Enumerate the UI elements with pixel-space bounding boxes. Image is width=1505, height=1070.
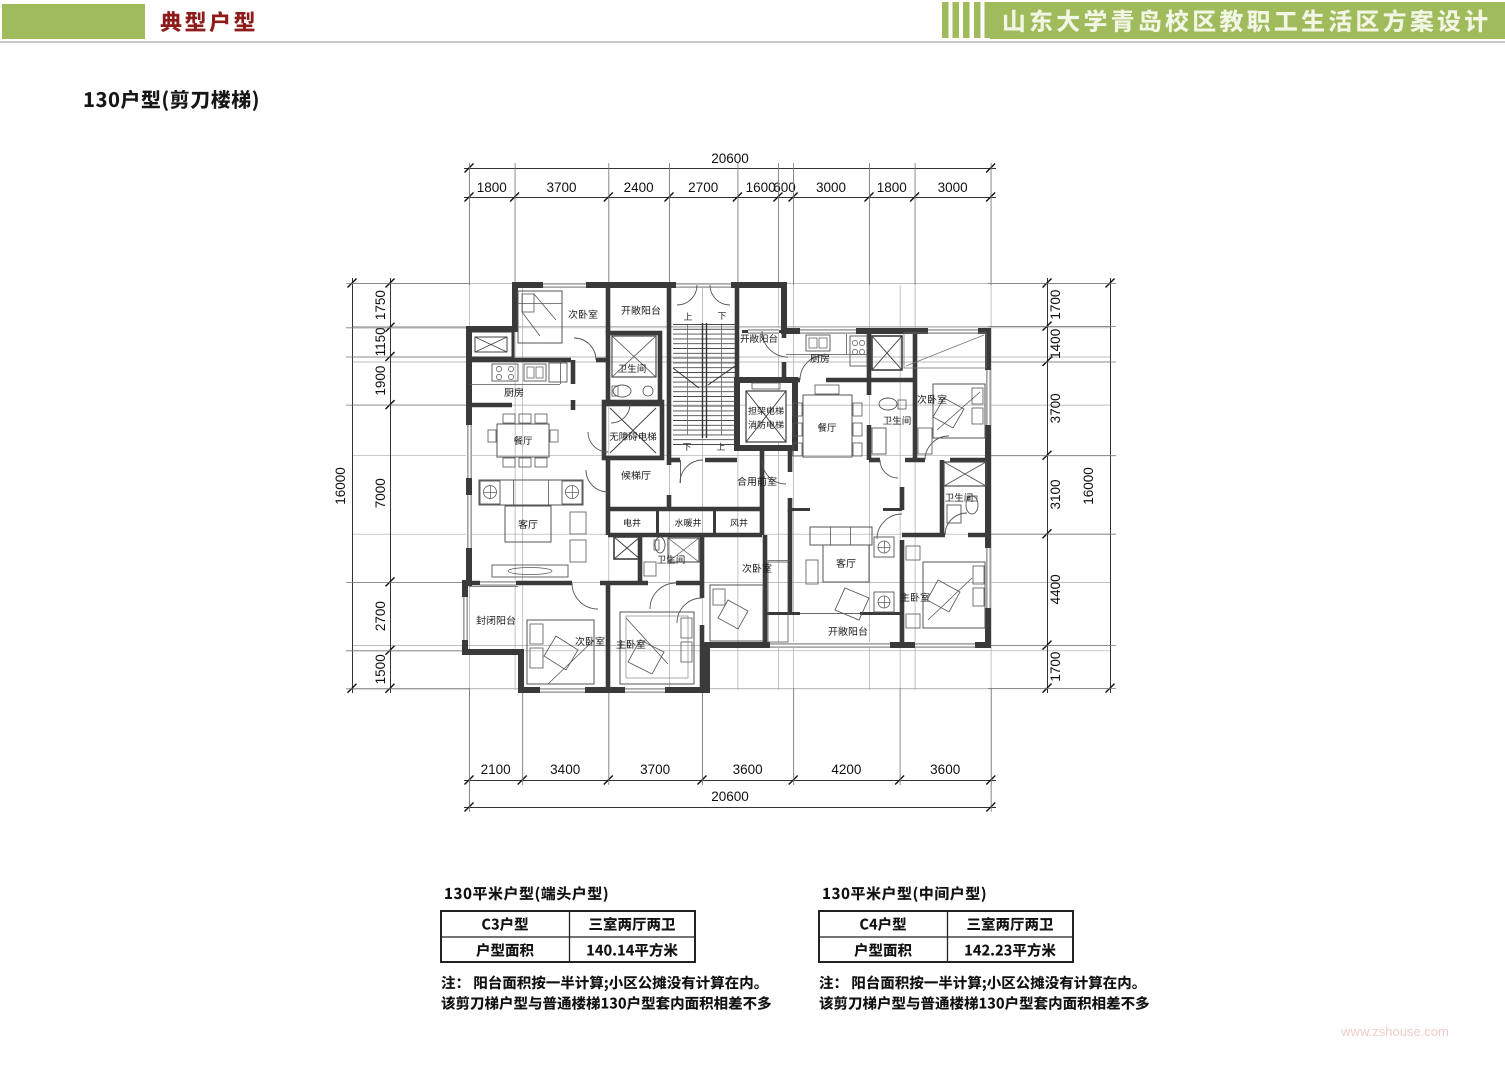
svg-text:1900: 1900: [373, 366, 388, 396]
svg-text:3600: 3600: [930, 762, 960, 777]
svg-text:1700: 1700: [1048, 290, 1063, 320]
svg-text:3400: 3400: [550, 762, 580, 777]
svg-text:3600: 3600: [733, 762, 763, 777]
svg-text:1750: 1750: [373, 290, 388, 320]
svg-text:1400: 1400: [1048, 329, 1063, 359]
svg-text:3700: 3700: [1048, 393, 1063, 423]
svg-text:3000: 3000: [938, 180, 968, 195]
svg-text:3000: 3000: [816, 180, 846, 195]
svg-text:1800: 1800: [877, 180, 907, 195]
svg-text:2700: 2700: [373, 601, 388, 631]
svg-text:3100: 3100: [1048, 479, 1063, 509]
svg-text:4400: 4400: [1048, 574, 1063, 604]
svg-text:16000: 16000: [1081, 467, 1096, 505]
svg-text:1800: 1800: [477, 180, 507, 195]
svg-text:20600: 20600: [711, 789, 749, 804]
svg-text:2700: 2700: [688, 180, 718, 195]
svg-text:600: 600: [773, 180, 796, 195]
svg-text:20600: 20600: [711, 151, 749, 166]
svg-text:3700: 3700: [640, 762, 670, 777]
svg-text:www.zshouse.com: www.zshouse.com: [1340, 1024, 1449, 1039]
svg-text:1500: 1500: [373, 654, 388, 684]
svg-text:3700: 3700: [546, 180, 576, 195]
svg-text:1700: 1700: [1048, 652, 1063, 682]
svg-text:4200: 4200: [831, 762, 861, 777]
svg-text:1600: 1600: [746, 180, 776, 195]
svg-text:1150: 1150: [373, 327, 388, 356]
svg-text:2100: 2100: [481, 762, 511, 777]
svg-text:2400: 2400: [624, 180, 654, 195]
svg-text:16000: 16000: [333, 467, 348, 505]
svg-text:7000: 7000: [373, 478, 388, 508]
